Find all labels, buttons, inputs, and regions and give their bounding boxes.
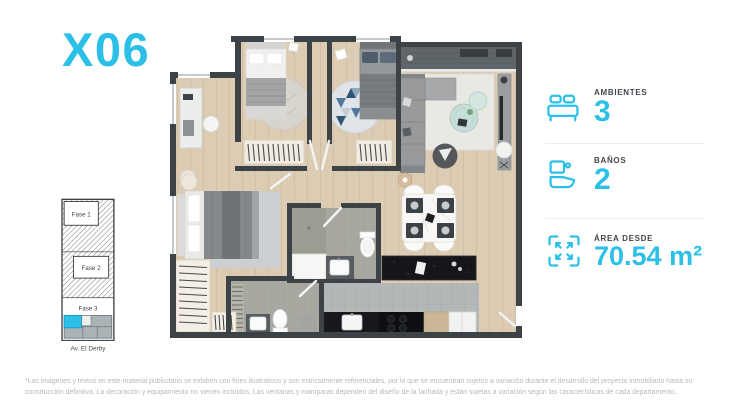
lounge-chair bbox=[422, 78, 456, 100]
reading-chair bbox=[496, 142, 512, 158]
stats-divider bbox=[545, 218, 705, 219]
fridge bbox=[449, 312, 476, 334]
closet-2 bbox=[212, 312, 236, 332]
blanket bbox=[360, 74, 398, 108]
kitchen-sink bbox=[342, 315, 362, 330]
closet bbox=[356, 140, 392, 164]
tv bbox=[500, 96, 504, 140]
basin bbox=[250, 317, 266, 330]
stat-value: 2 bbox=[594, 166, 626, 195]
closet bbox=[244, 140, 304, 164]
highlighted-unit bbox=[64, 315, 82, 327]
shower bbox=[292, 208, 326, 254]
unit-title: X06 bbox=[62, 22, 150, 77]
headboard bbox=[177, 194, 185, 256]
desk-chair bbox=[203, 116, 219, 132]
headboard bbox=[360, 42, 398, 49]
stat-value: 3 bbox=[594, 98, 647, 127]
shower-tray bbox=[292, 254, 326, 279]
phase-2-label: Fase 2 bbox=[82, 265, 102, 272]
stat-value: 70.54 m² bbox=[594, 244, 702, 270]
bed-icon bbox=[545, 89, 583, 127]
toilet bbox=[273, 310, 287, 329]
phase-1-label: Fase 1 bbox=[72, 211, 92, 218]
toilet-icon bbox=[545, 157, 583, 195]
stat-ambientes: AMBIENTES 3 bbox=[545, 88, 647, 127]
phase-3-label: Fase 3 bbox=[78, 306, 98, 313]
page-root: { "accent_color": "#2cc0e8", "wall_color… bbox=[0, 0, 730, 410]
unit-stats-panel: AMBIENTES 3 BAÑOS 2 ÁREA DESDE 70 bbox=[545, 88, 715, 288]
plant bbox=[467, 109, 473, 115]
side-table bbox=[469, 92, 487, 110]
stats-divider bbox=[545, 143, 705, 144]
street-label: Av. El Derby bbox=[70, 346, 106, 353]
disclaimer-text: *Las imágenes y textos en este material … bbox=[25, 377, 707, 398]
balcony-glass bbox=[401, 69, 516, 72]
phase-location-map: Fase 1 Fase 2 Fase 3 Av. El Derby bbox=[60, 196, 118, 354]
kitchen-bar-counter bbox=[382, 256, 476, 280]
area-icon bbox=[545, 232, 583, 270]
cabinet bbox=[424, 312, 449, 334]
closet bbox=[176, 260, 210, 332]
floor-plan-image bbox=[164, 28, 528, 346]
dining-area bbox=[402, 185, 456, 251]
phase-3-units bbox=[64, 315, 112, 338]
nightstand bbox=[181, 174, 197, 190]
balcony bbox=[401, 47, 516, 72]
stat-area: ÁREA DESDE 70.54 m² bbox=[545, 232, 702, 270]
stat-banos: BAÑOS 2 bbox=[545, 156, 626, 195]
headboard bbox=[246, 42, 286, 49]
basin bbox=[330, 260, 349, 275]
